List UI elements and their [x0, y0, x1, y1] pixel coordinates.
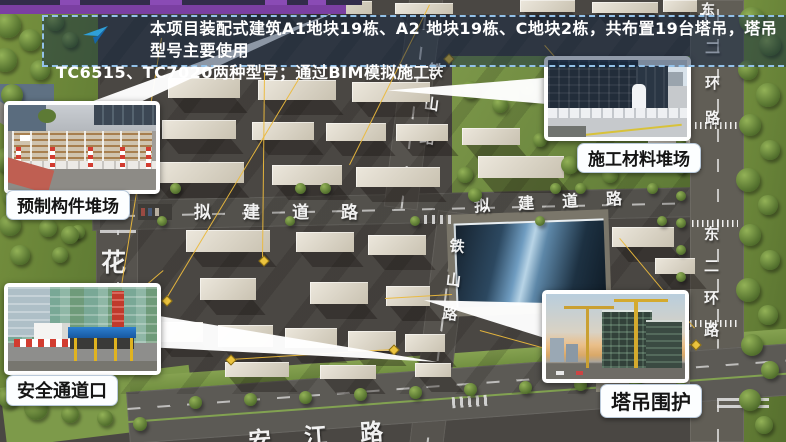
road-label-ring-north-partial: 东 [697, 2, 717, 16]
tower-crane-marker [161, 295, 172, 306]
tree [647, 183, 658, 194]
callout-label-safety: 安全通道口 [6, 375, 118, 406]
slide: 拟建道路 拟建道路 铁山路 铁山路 二环路 东 东二环路 花 安江路 [0, 0, 786, 442]
building-block [162, 120, 236, 139]
tree [736, 278, 760, 302]
tree [676, 245, 686, 255]
top-bar-notch [150, 0, 182, 5]
silo [632, 84, 646, 108]
tree [157, 216, 167, 226]
tree [464, 383, 477, 396]
top-bar-notch [60, 0, 80, 5]
description-banner: 本项目装配式建筑A1地块19栋、A2 地块19栋、C地块2栋，共布置19台塔吊，… [42, 15, 786, 67]
building-block [310, 282, 368, 304]
building-block [592, 2, 658, 13]
building-block [186, 230, 270, 252]
canopy-post [130, 337, 133, 363]
tree [320, 183, 331, 194]
tree [760, 140, 780, 160]
tree [39, 219, 57, 237]
tree [285, 216, 295, 226]
tree [758, 195, 778, 215]
building-block [326, 123, 386, 141]
building-block [252, 122, 314, 140]
building-block [200, 278, 256, 300]
tree [657, 216, 667, 226]
tree [457, 167, 473, 183]
building-block [520, 0, 575, 12]
top-bar-notch [308, 0, 326, 5]
photo-safety-passage [4, 283, 161, 375]
building-block [663, 0, 697, 12]
building-block [405, 334, 445, 352]
building-block [478, 156, 564, 178]
building-block [415, 363, 451, 377]
tree [410, 216, 420, 226]
striped-post [50, 147, 55, 171]
tree [755, 416, 773, 434]
photo-precast-yard [4, 101, 160, 194]
tree [739, 224, 761, 246]
crane-mast [586, 306, 589, 368]
tree [739, 114, 761, 136]
tree [10, 245, 30, 265]
striped-post [120, 147, 125, 171]
tree [760, 250, 780, 270]
blue-canopy [68, 327, 136, 338]
tree [170, 183, 181, 194]
tree [468, 188, 482, 202]
tree [519, 381, 532, 394]
tree [676, 272, 686, 282]
tree [550, 183, 561, 194]
banner-line2: TC6515、TC7020两种型号；通过BIM模拟施工。 [56, 62, 786, 84]
building-block [152, 162, 244, 183]
tree [354, 388, 367, 401]
tree [758, 305, 778, 325]
photo-crane-enclosure [542, 290, 689, 383]
tree [739, 389, 761, 411]
tree [299, 391, 312, 404]
mesh-building [602, 310, 652, 368]
building-block [368, 235, 426, 255]
tree [756, 83, 780, 107]
tree [61, 226, 79, 244]
striped-post [146, 147, 151, 171]
building-block [462, 128, 520, 145]
building-block [612, 227, 674, 247]
tree [97, 410, 113, 426]
building-block [225, 362, 289, 377]
mesh-building [646, 320, 682, 370]
banner-line1: 本项目装配式建筑A1地块19栋、A2 地块19栋、C地块2栋，共布置19台塔吊，… [56, 18, 786, 62]
tree [133, 417, 147, 431]
building-block [320, 365, 376, 379]
tree [295, 183, 306, 194]
tree [52, 247, 68, 263]
canopy-post [94, 337, 97, 363]
tree [535, 216, 545, 226]
building-block [272, 165, 342, 185]
building-block [396, 124, 448, 141]
tree [575, 183, 586, 194]
callout-label-precast: 预制构件堆场 [6, 190, 130, 220]
tree [19, 29, 41, 51]
crane-mast [634, 299, 638, 371]
top-bar-notch [265, 0, 287, 5]
tree [741, 334, 763, 356]
tree [676, 218, 686, 228]
tree [761, 361, 779, 379]
building-block [296, 232, 354, 252]
road-label-ring-east: 东二环路 [701, 226, 722, 354]
callout-label-crane: 塔吊围护 [600, 384, 702, 418]
building-block [655, 258, 695, 274]
canopy-post [74, 337, 77, 363]
building-block [356, 167, 440, 187]
crosswalk [424, 215, 454, 224]
striped-barrier [14, 339, 76, 347]
canopy-shade [70, 337, 134, 349]
crane-jib [564, 306, 614, 309]
canopy-post [114, 337, 117, 363]
top-bar-purple [0, 5, 346, 14]
tree [189, 396, 202, 409]
tree [244, 393, 257, 406]
tree [736, 168, 760, 192]
crane-jib [614, 299, 668, 302]
callout-label-materials: 施工材料堆场 [577, 143, 701, 173]
parking-lot [138, 204, 172, 220]
tent [34, 323, 70, 339]
fence [548, 108, 687, 118]
tree [676, 191, 686, 201]
tree [61, 405, 79, 423]
tree [409, 386, 422, 399]
paper-plane-icon [82, 24, 110, 46]
striped-post [88, 147, 93, 171]
